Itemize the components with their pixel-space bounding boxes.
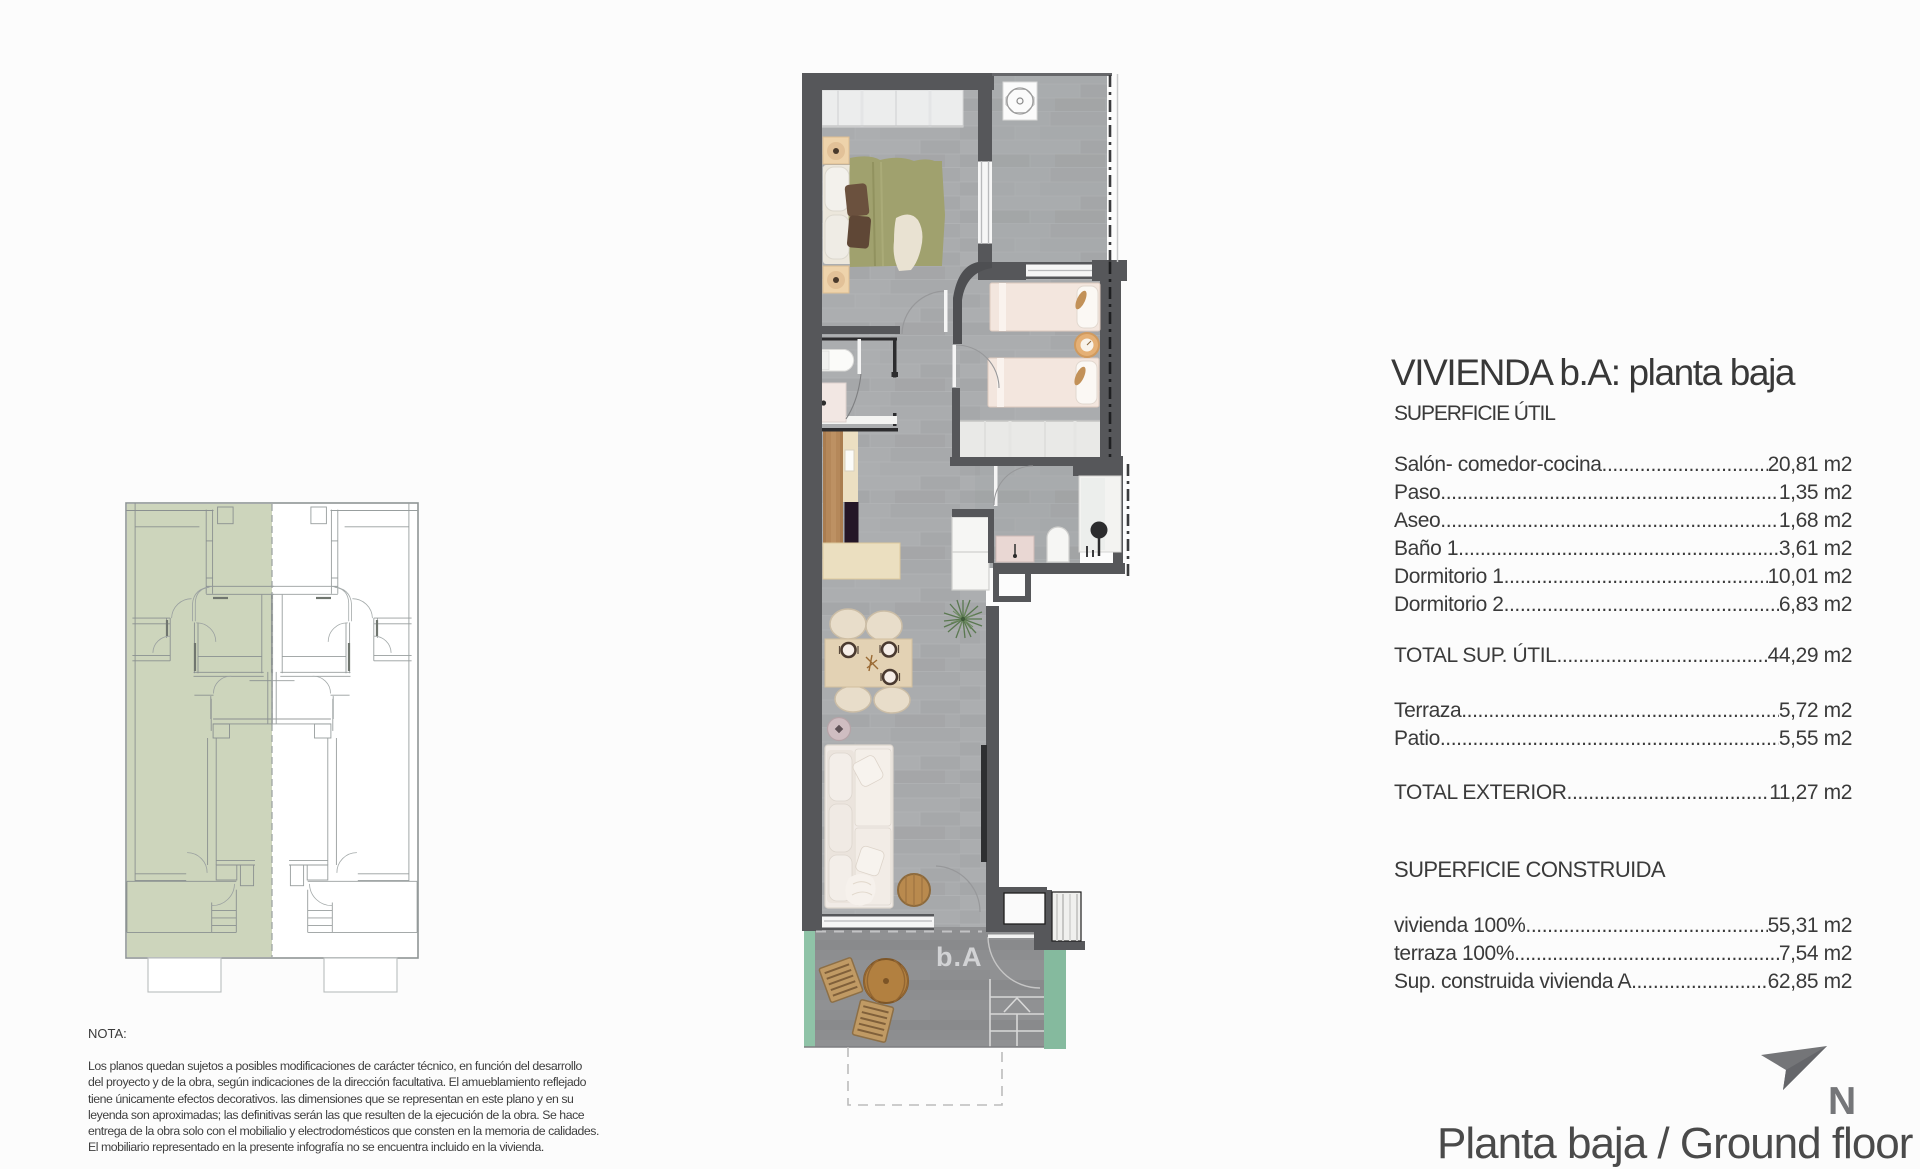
svg-text:N: N (1828, 1080, 1856, 1123)
svg-text:b.A: b.A (936, 942, 983, 972)
